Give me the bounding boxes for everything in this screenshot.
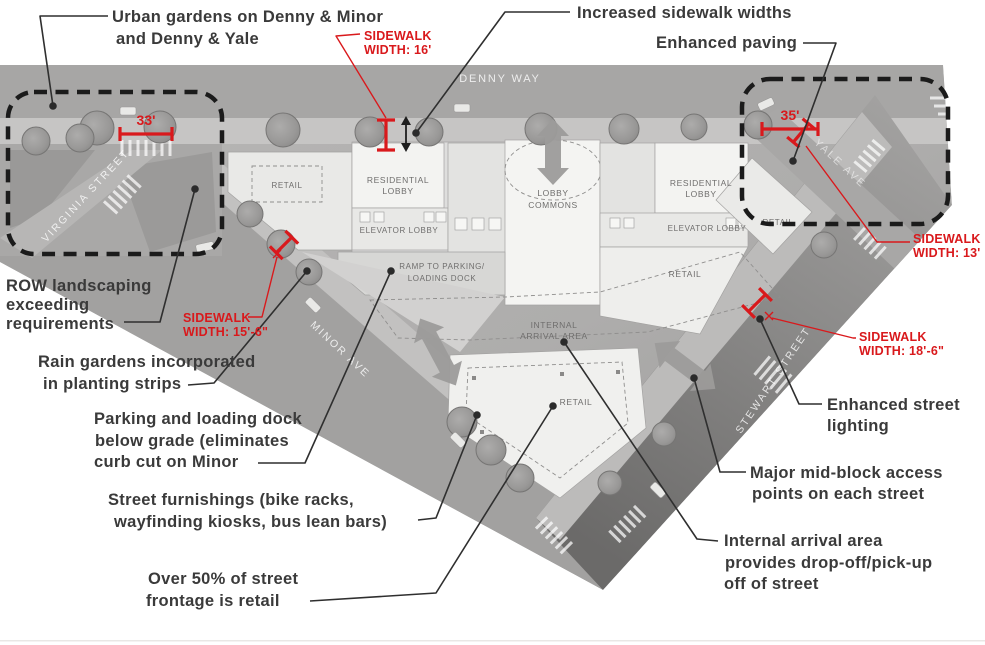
callout-enhanced-paving: Enhanced paving xyxy=(656,34,797,52)
callout-parking-loading: Parking and loading dock xyxy=(94,410,303,428)
aerial-plan: DENNY WAY VIRGINIA STREET MINOR AVE YALE… xyxy=(0,65,985,590)
internal-arrival-label: INTERNAL xyxy=(531,320,578,330)
callout-urban-gardens-2: and Denny & Yale xyxy=(116,30,259,48)
callout-parking-loading-3: curb cut on Minor xyxy=(94,453,239,471)
page-edge-line xyxy=(0,640,985,642)
lobby-commons-label: LOBBY xyxy=(537,188,568,198)
label-sidewalk-15-6-2: WIDTH: 15'-6" xyxy=(183,325,268,339)
retail-pavilion-label: RETAIL xyxy=(560,397,593,407)
elevator-lobby-left-label: ELEVATOR LOBBY xyxy=(360,226,439,235)
callout-internal-arrival: Internal arrival area xyxy=(724,532,883,550)
residential-lobby-right-label: RESIDENTIAL xyxy=(670,178,732,188)
callout-increased-sidewalk: Increased sidewalk widths xyxy=(577,4,792,22)
callout-internal-arrival-2: provides drop-off/pick-up xyxy=(725,554,932,572)
callout-enhanced-lighting-2: lighting xyxy=(827,417,889,435)
label-sidewalk-16-2: WIDTH: 16' xyxy=(364,43,431,57)
dimension-35-label: 35' xyxy=(781,107,800,123)
dimension-33-label: 33' xyxy=(137,112,156,128)
callout-internal-arrival-3: off of street xyxy=(724,575,819,593)
callout-rain-gardens-2: in planting strips xyxy=(43,375,181,393)
label-sidewalk-13-2: WIDTH: 13' xyxy=(913,246,980,260)
internal-arrival-label2: ARRIVAL AREA xyxy=(520,331,588,341)
callout-rain-gardens: Rain gardens incorporated xyxy=(38,353,255,371)
label-sidewalk-15-6: SIDEWALK xyxy=(183,311,251,325)
residential-lobby-left-label2: LOBBY xyxy=(382,186,413,196)
callout-urban-gardens: Urban gardens on Denny & Minor xyxy=(112,8,383,26)
label-sidewalk-13: SIDEWALK xyxy=(913,232,981,246)
retail-left-label: RETAIL xyxy=(271,181,302,190)
label-sidewalk-18-6-2: WIDTH: 18'-6" xyxy=(859,344,944,358)
label-sidewalk-16: SIDEWALK xyxy=(364,29,432,43)
label-sidewalk-18-6: SIDEWALK xyxy=(859,330,927,344)
residential-lobby-right-label2: LOBBY xyxy=(685,189,716,199)
mid-block-left xyxy=(448,143,510,253)
callout-enhanced-lighting: Enhanced street xyxy=(827,396,960,414)
callout-street-furnishings: Street furnishings (bike racks, xyxy=(108,491,354,509)
callout-over-50-retail-2: frontage is retail xyxy=(146,592,280,610)
callout-row-landscaping: ROW landscaping xyxy=(6,277,152,295)
callout-major-midblock-2: points on each street xyxy=(752,485,924,503)
ramp-label2: LOADING DOCK xyxy=(408,274,477,283)
callout-row-landscaping-3: requirements xyxy=(6,315,114,333)
callout-major-midblock: Major mid-block access xyxy=(750,464,943,482)
callout-over-50-retail: Over 50% of street xyxy=(148,570,299,588)
retail-right-label: RETAIL xyxy=(669,269,702,279)
callout-parking-loading-2: below grade (eliminates xyxy=(95,432,289,450)
site-plan-svg: DENNY WAY VIRGINIA STREET MINOR AVE YALE… xyxy=(0,0,985,645)
callout-row-landscaping-2: exceeding xyxy=(6,296,89,314)
elevator-lobby-right-label: ELEVATOR LOBBY xyxy=(668,224,747,233)
residential-lobby-left-label: RESIDENTIAL xyxy=(367,175,429,185)
ramp-label: RAMP TO PARKING/ xyxy=(399,262,485,271)
callout-street-furnishings-2: wayfinding kiosks, bus lean bars) xyxy=(113,513,387,531)
site-plan-figure: DENNY WAY VIRGINIA STREET MINOR AVE YALE… xyxy=(0,0,985,645)
lobby-commons-label2: COMMONS xyxy=(528,200,578,210)
denny-way-label: DENNY WAY xyxy=(459,73,540,85)
